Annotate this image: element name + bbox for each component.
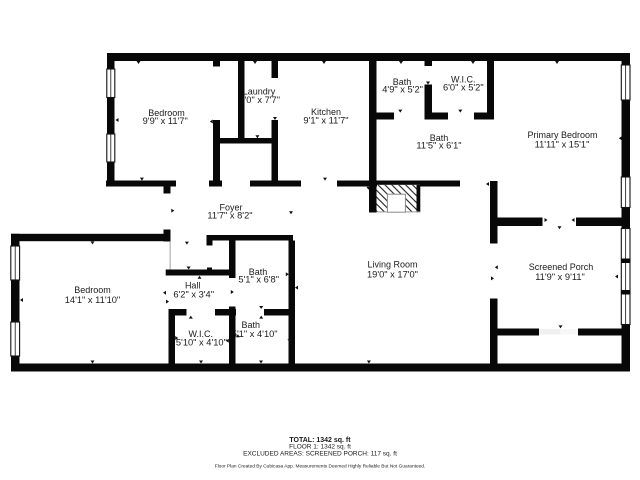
svg-text:3'0" x 7'7": 3'0" x 7'7" bbox=[239, 95, 280, 105]
svg-text:Floor Plan Created By Cubicasa: Floor Plan Created By Cubicasa App. Meas… bbox=[215, 463, 426, 469]
svg-text:11'7" x 8'2": 11'7" x 8'2" bbox=[207, 211, 252, 221]
svg-text:14'1" x 11'10": 14'1" x 11'10" bbox=[65, 295, 120, 305]
svg-text:5'1" x 4'10": 5'1" x 4'10" bbox=[232, 329, 278, 339]
svg-text:EXCLUDED AREAS: SCREENED PORCH: EXCLUDED AREAS: SCREENED PORCH: 117 sq. … bbox=[243, 451, 397, 458]
svg-text:4'9" x 5'2": 4'9" x 5'2" bbox=[382, 84, 423, 94]
svg-text:11'5" x 6'1": 11'5" x 6'1" bbox=[416, 141, 461, 151]
svg-text:11'9" x 9'11": 11'9" x 9'11" bbox=[535, 272, 585, 282]
svg-text:FLOOR 1: 1342 sq. ft: FLOOR 1: 1342 sq. ft bbox=[289, 443, 351, 450]
svg-text:9'1" x 11'7": 9'1" x 11'7" bbox=[303, 116, 348, 126]
svg-text:Screened Porch: Screened Porch bbox=[529, 262, 594, 272]
svg-text:6'2" x 3'4": 6'2" x 3'4" bbox=[173, 289, 214, 299]
svg-text:11'11" x 15'1": 11'11" x 15'1" bbox=[535, 139, 590, 149]
svg-text:9'9" x 11'7": 9'9" x 11'7" bbox=[143, 116, 188, 126]
svg-text:6'0" x 5'2": 6'0" x 5'2" bbox=[443, 83, 484, 93]
svg-text:5'10" x 4'10": 5'10" x 4'10" bbox=[176, 338, 227, 348]
svg-text:5'1" x 6'8": 5'1" x 6'8" bbox=[238, 275, 279, 285]
svg-text:19'0" x 17'0": 19'0" x 17'0" bbox=[367, 269, 418, 279]
svg-text:Bedroom: Bedroom bbox=[74, 285, 111, 295]
svg-text:Living Room: Living Room bbox=[367, 259, 417, 269]
